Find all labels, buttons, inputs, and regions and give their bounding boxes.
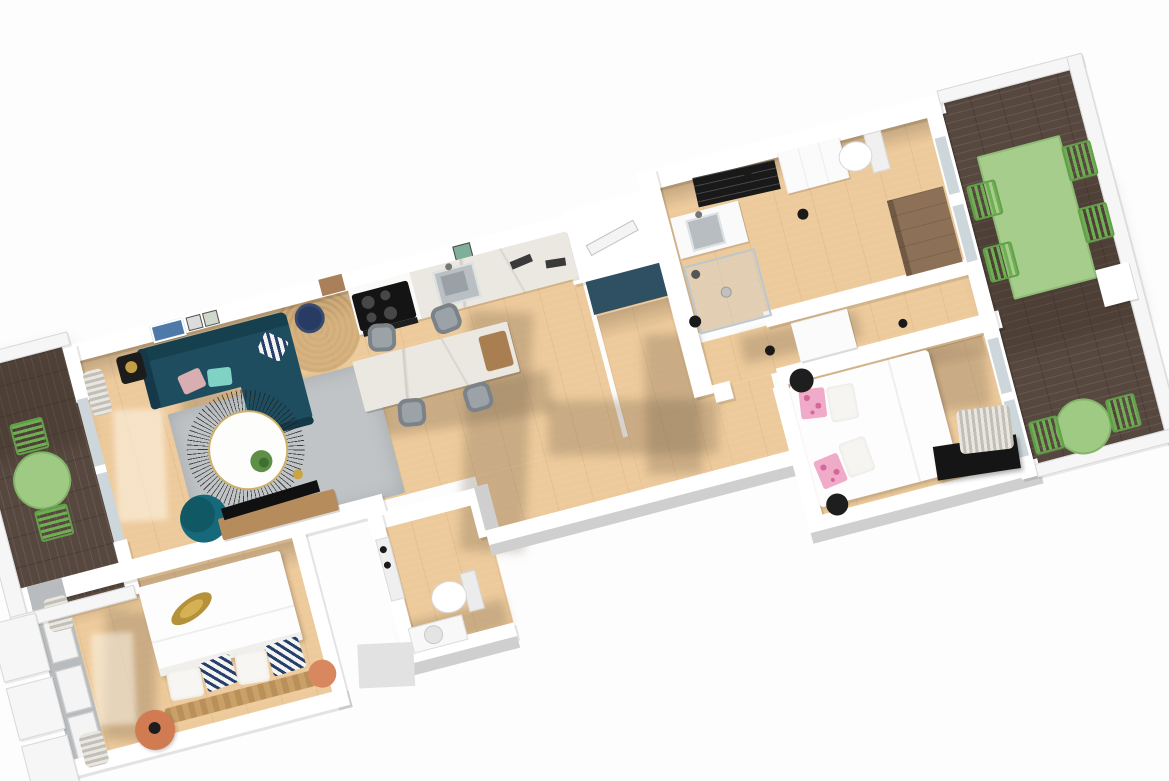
floorplan-stage	[0, 0, 1169, 781]
sunlight-patch	[113, 408, 168, 522]
dining-chair	[397, 397, 427, 427]
dining-chair	[367, 323, 396, 352]
wall-face	[357, 642, 415, 689]
white-pillow	[234, 649, 270, 685]
white-pillow	[166, 666, 205, 702]
aqua-pillow	[207, 367, 233, 388]
curtain-bunch	[956, 405, 1015, 455]
sunlight-patch	[91, 632, 137, 726]
apartment-plan	[0, 3, 1169, 781]
